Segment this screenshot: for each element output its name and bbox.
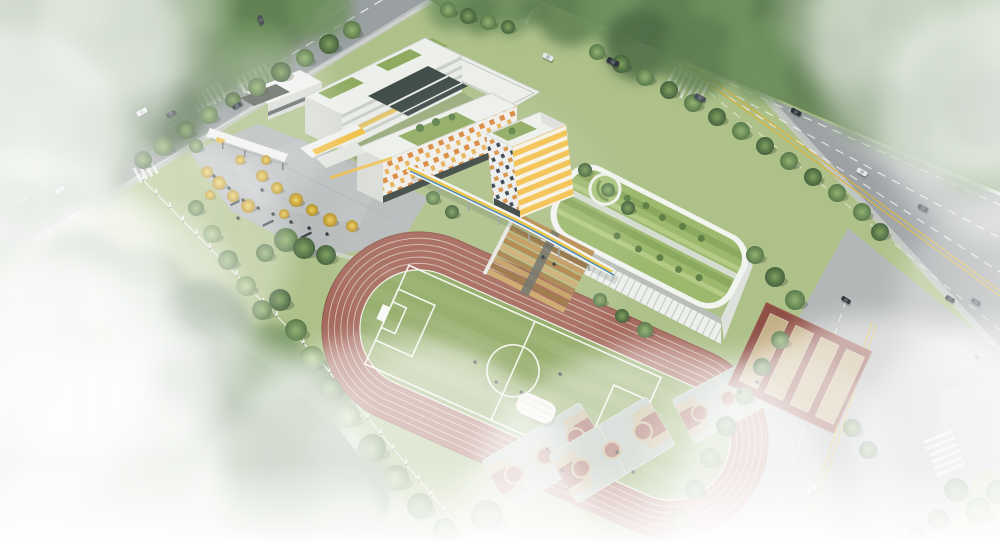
tree [708,108,726,126]
tree [289,193,303,207]
person [307,226,310,229]
tree [780,152,798,170]
tree [828,184,846,202]
person [289,220,292,223]
tree [636,68,654,86]
aerial-rendering-stage: Aerial architectural rendering of a scho… [0,0,1000,541]
person [325,232,328,235]
tree [660,81,678,99]
tree [765,267,785,287]
fence-post-base [303,343,305,345]
tree [440,2,456,18]
tree [589,44,605,60]
tree [285,319,307,341]
tree [732,122,750,140]
tree [306,204,318,216]
fog-blob [330,90,630,390]
tree [319,34,339,54]
campus-rendering [0,0,1000,541]
tree [785,290,805,310]
tree [480,14,496,30]
tree [853,203,871,221]
tree [615,309,629,323]
tree [460,8,476,24]
tree [756,137,774,155]
left-fade [0,0,240,541]
tree [343,21,361,39]
tree [804,168,822,186]
right-fade [870,0,1000,541]
tree [637,322,653,338]
fence-post-base [276,316,278,318]
tree [501,20,515,34]
tree [293,237,315,259]
tree [746,246,764,264]
